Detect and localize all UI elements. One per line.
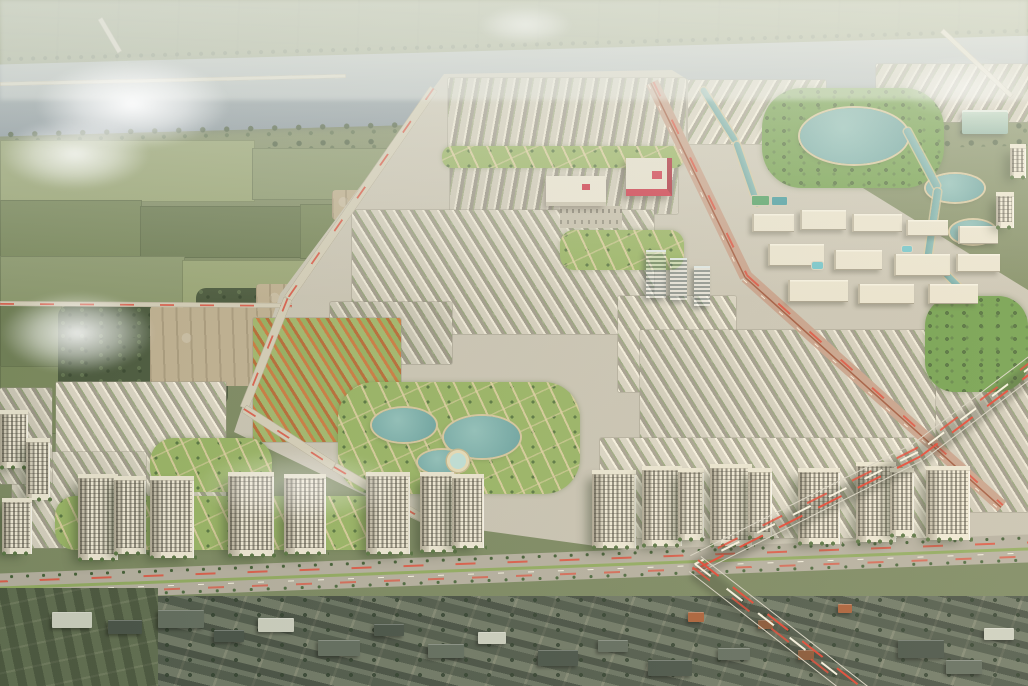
cloud <box>0 118 150 190</box>
cloud <box>195 448 405 523</box>
cloud <box>895 56 1028 118</box>
cloud <box>0 292 155 374</box>
aerial-scene <box>0 0 1028 686</box>
cloud <box>478 6 573 44</box>
atmosphere-layer <box>0 0 1028 686</box>
